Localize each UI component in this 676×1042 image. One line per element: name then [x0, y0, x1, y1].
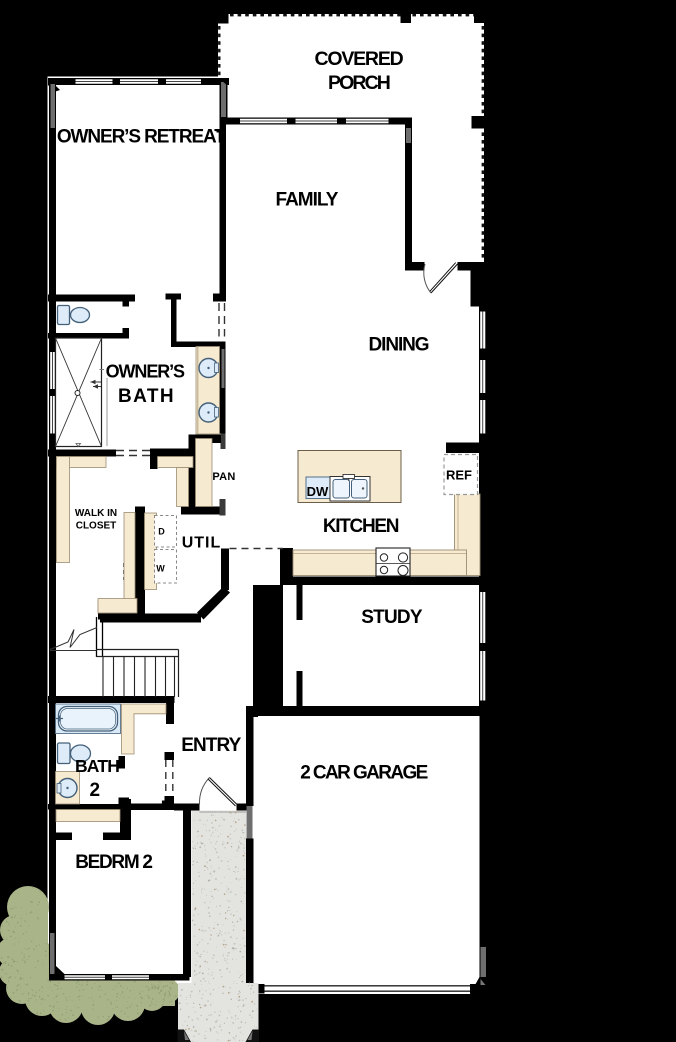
svg-text:FAMILY: FAMILY	[276, 190, 339, 211]
svg-text:DW: DW	[307, 484, 329, 499]
svg-text:2: 2	[90, 780, 101, 801]
svg-text:CLOSET: CLOSET	[76, 521, 117, 532]
svg-text:BEDRM 2: BEDRM 2	[75, 852, 152, 873]
svg-text:COVERED: COVERED	[314, 48, 403, 70]
svg-text:PAN: PAN	[212, 471, 235, 483]
svg-text:KITCHEN: KITCHEN	[323, 516, 399, 537]
svg-text:DINING: DINING	[369, 335, 429, 356]
svg-text:REF: REF	[446, 468, 472, 483]
svg-text:BATH: BATH	[118, 386, 175, 407]
svg-text:OWNER’S RETREAT: OWNER’S RETREAT	[57, 127, 226, 148]
svg-text:ENTRY: ENTRY	[181, 735, 241, 756]
svg-text:UTIL: UTIL	[182, 535, 222, 552]
svg-text:PORCH: PORCH	[328, 72, 390, 94]
svg-text:STUDY: STUDY	[361, 607, 423, 628]
svg-text:2 CAR GARAGE: 2 CAR GARAGE	[300, 763, 427, 784]
svg-text:BATH: BATH	[75, 756, 119, 776]
svg-text:WALK IN: WALK IN	[75, 508, 117, 519]
svg-text:W: W	[156, 564, 165, 574]
svg-text:D: D	[158, 527, 165, 537]
svg-text:OWNER’S: OWNER’S	[106, 362, 185, 382]
